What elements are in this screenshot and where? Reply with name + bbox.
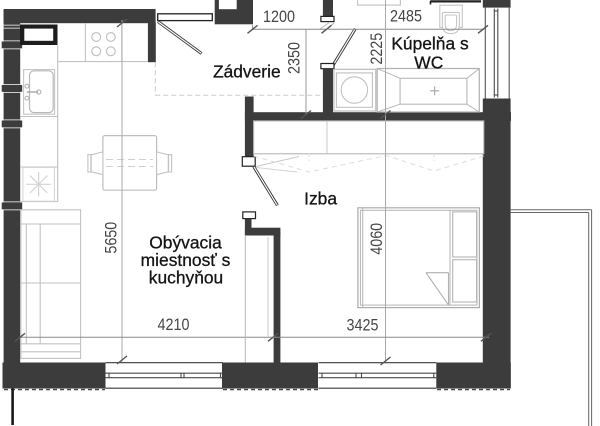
svg-text:1200: 1200 xyxy=(263,8,295,26)
svg-text:Izba: Izba xyxy=(304,189,337,209)
svg-text:2225: 2225 xyxy=(368,33,386,65)
svg-text:2485: 2485 xyxy=(390,8,422,26)
svg-text:kuchyňou: kuchyňou xyxy=(149,267,223,287)
svg-text:Zádverie: Zádverie xyxy=(213,62,281,82)
svg-text:5650: 5650 xyxy=(103,222,121,254)
svg-text:2350: 2350 xyxy=(286,42,304,74)
svg-text:3425: 3425 xyxy=(347,317,379,335)
svg-text:4210: 4210 xyxy=(158,316,190,334)
svg-text:WC: WC xyxy=(414,53,443,73)
svg-text:Kúpelňa s: Kúpelňa s xyxy=(391,34,469,54)
svg-text:4060: 4060 xyxy=(368,223,386,255)
